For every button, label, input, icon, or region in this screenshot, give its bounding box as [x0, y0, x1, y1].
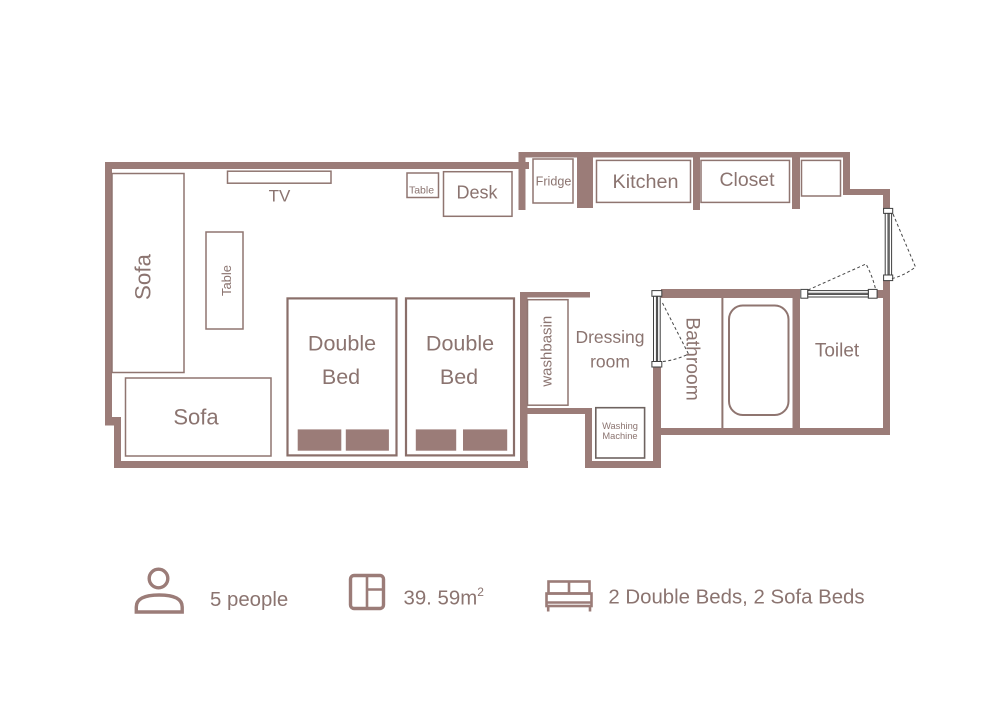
- svg-text:Double: Double: [426, 332, 494, 356]
- svg-text:Fridge: Fridge: [536, 175, 572, 189]
- svg-text:washbasin: washbasin: [539, 316, 556, 388]
- svg-text:Dressing: Dressing: [575, 327, 644, 347]
- svg-text:room: room: [590, 352, 630, 372]
- svg-text:Table: Table: [409, 185, 434, 197]
- svg-text:Toilet: Toilet: [815, 341, 860, 362]
- svg-text:Sofa: Sofa: [173, 404, 219, 429]
- svg-text:5 people: 5 people: [210, 589, 288, 611]
- svg-text:Double: Double: [308, 332, 376, 356]
- svg-text:Bed: Bed: [322, 365, 360, 389]
- svg-text:Table: Table: [219, 265, 234, 296]
- svg-text:Sofa: Sofa: [131, 253, 156, 299]
- svg-text:Bed: Bed: [440, 365, 478, 389]
- svg-text:39. 59m2: 39. 59m2: [404, 585, 485, 610]
- svg-text:TV: TV: [269, 186, 291, 205]
- svg-text:Kitchen: Kitchen: [613, 171, 679, 193]
- svg-text:Machine: Machine: [602, 431, 637, 441]
- svg-text:Closet: Closet: [720, 169, 776, 191]
- svg-text:Desk: Desk: [456, 182, 498, 202]
- svg-text:2 Double Beds, 2 Sofa Beds: 2 Double Beds, 2 Sofa Beds: [608, 587, 864, 609]
- svg-text:Bathroom: Bathroom: [682, 317, 703, 401]
- svg-text:Washing: Washing: [602, 421, 638, 431]
